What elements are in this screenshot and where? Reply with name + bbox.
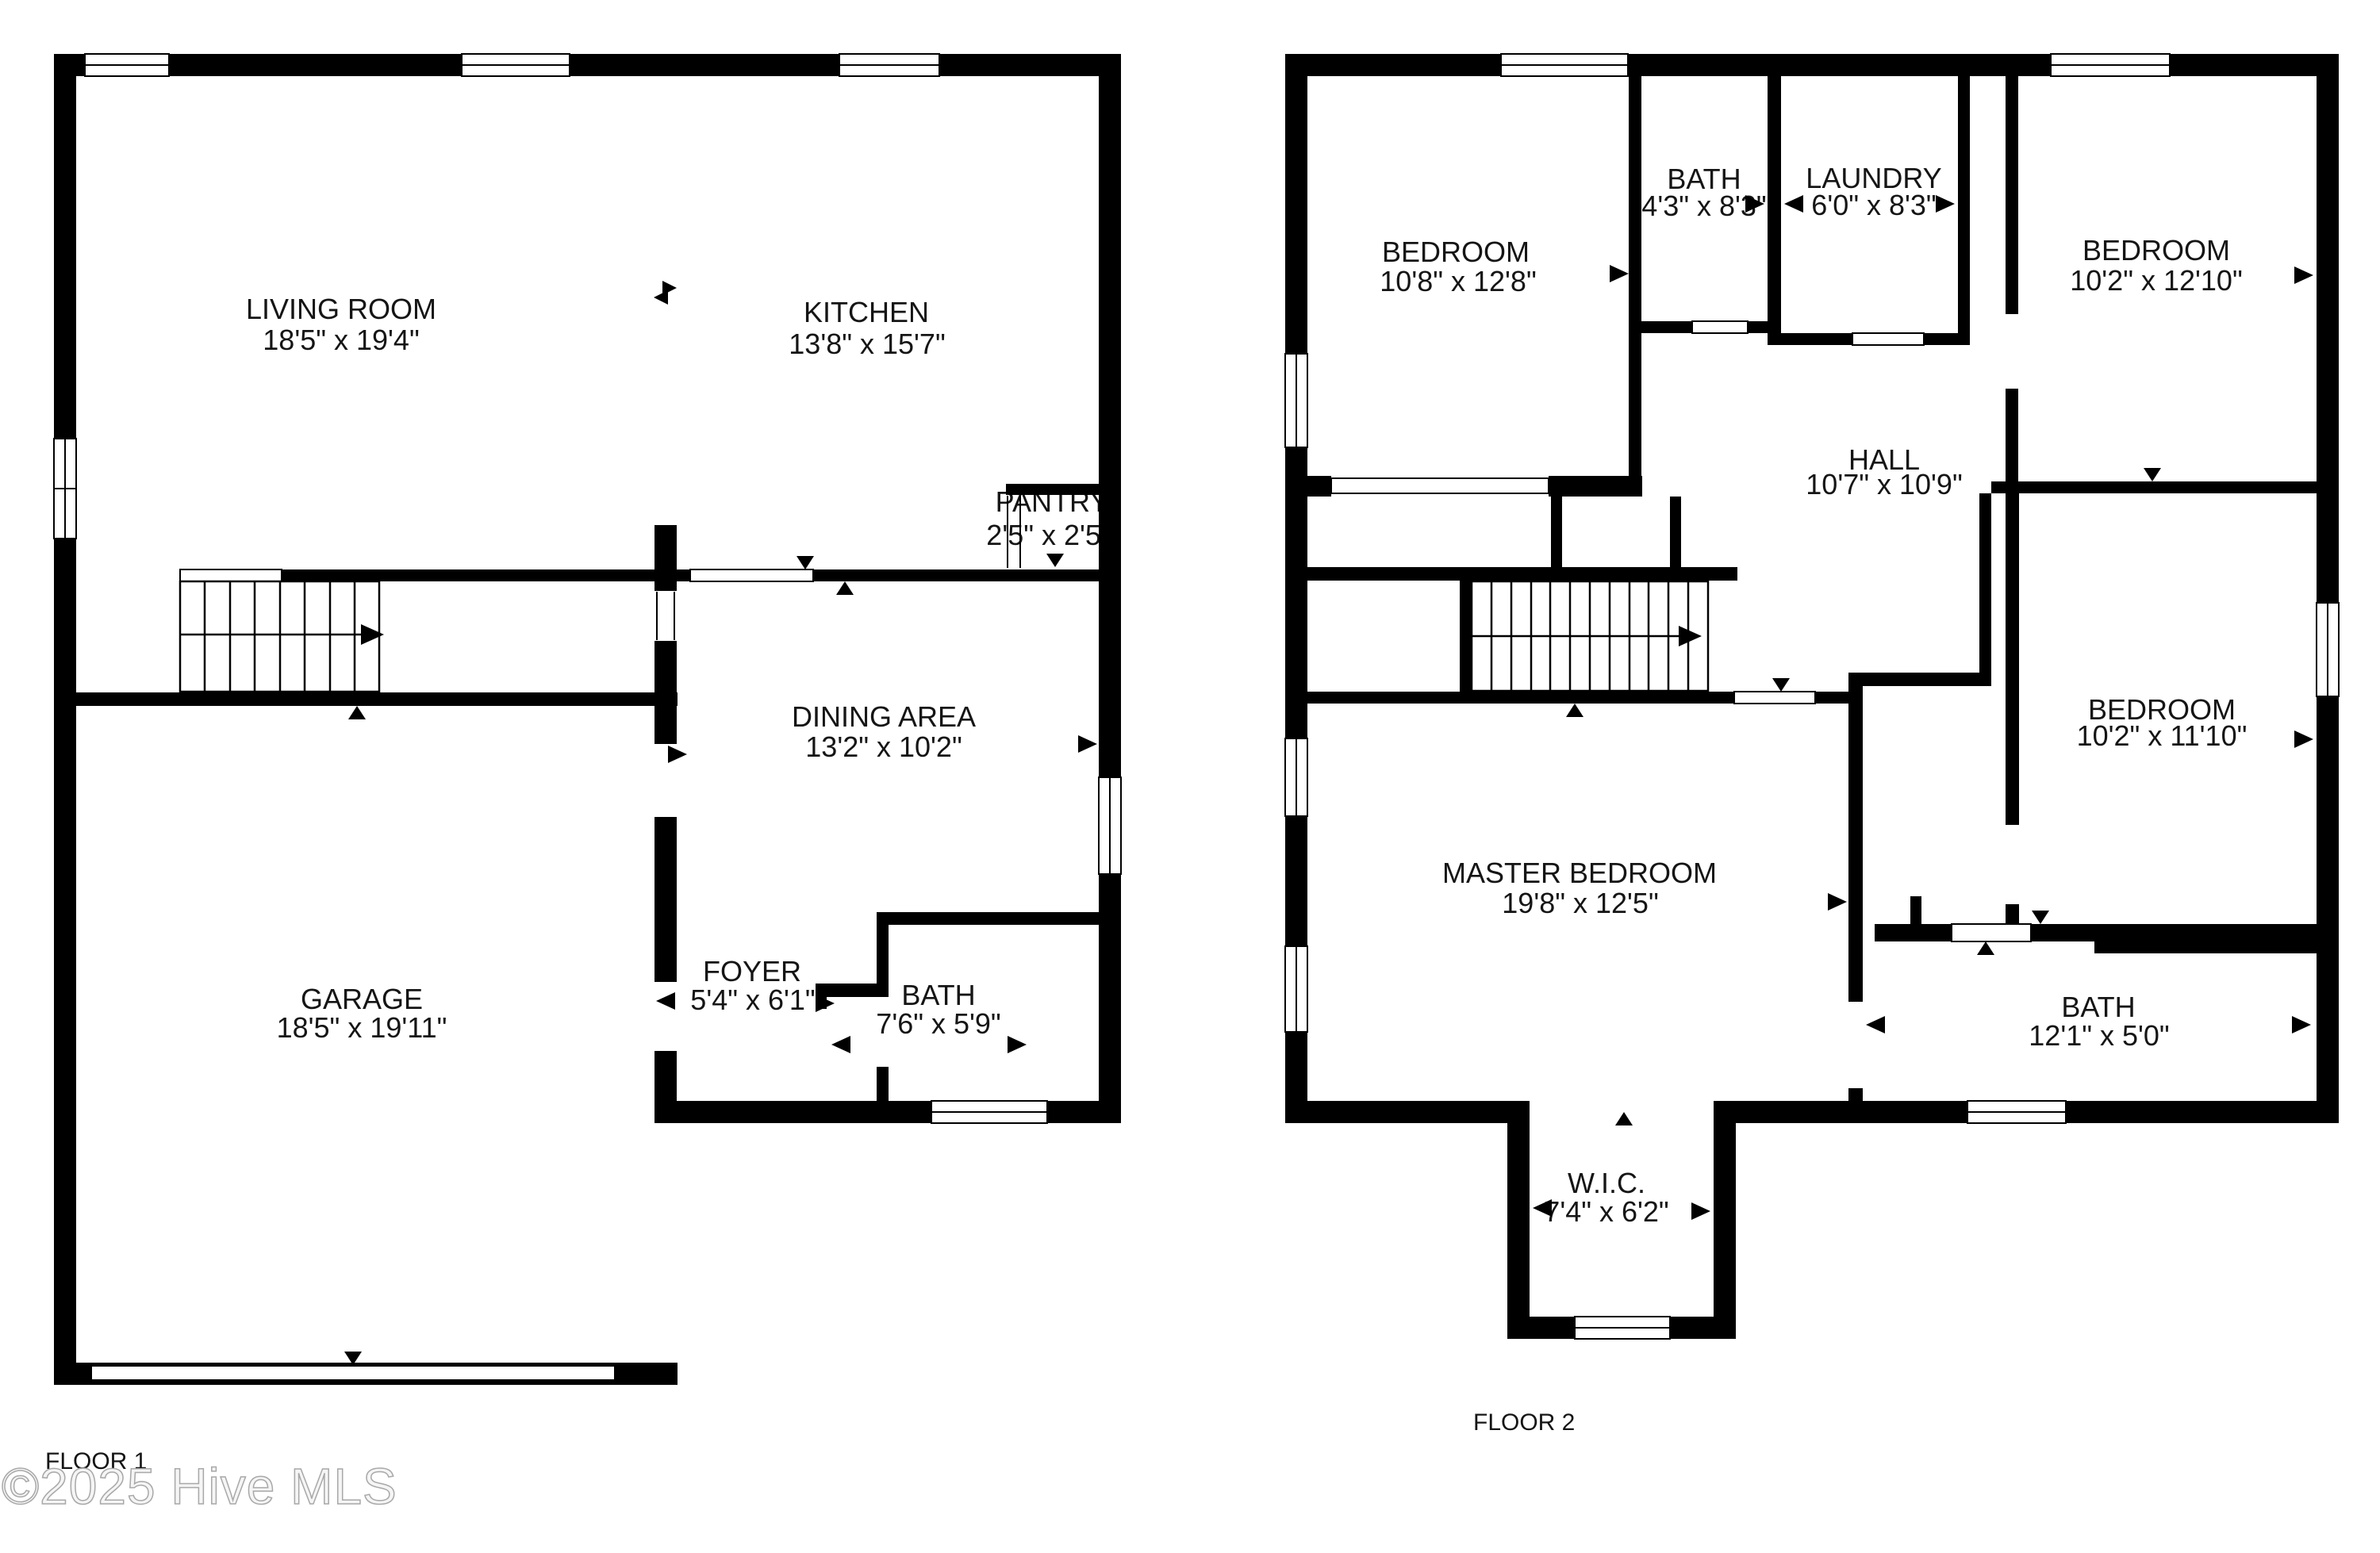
room-dims-hall: 10'7" x 10'9" xyxy=(1806,468,1962,500)
room-dims-bath-1: 7'6" x 5'9" xyxy=(876,1007,1000,1040)
room-dims-laundry: 6'0" x 8'3" xyxy=(1811,189,1936,221)
room-label-bedroom-topleft: BEDROOM xyxy=(1382,236,1530,268)
room-label-kitchen: KITCHEN xyxy=(804,296,929,328)
room-dims-wic: 7'4" x 6'2" xyxy=(1544,1195,1668,1228)
floor1-plan: LIVING ROOM 18'5" x 19'4" KITCHEN 13'8" … xyxy=(54,54,1121,1385)
floor2-plan: BEDROOM 10'8" x 12'8" BATH 4'3" x 8'3" L… xyxy=(1285,54,2339,1339)
room-dims-kitchen: 13'8" x 15'7" xyxy=(789,328,945,360)
room-label-master-bedroom: MASTER BEDROOM xyxy=(1442,857,1717,889)
room-dims-bedroom-topleft: 10'8" x 12'8" xyxy=(1380,265,1536,297)
room-dims-bedroom-topright: 10'2" x 12'10" xyxy=(2070,264,2242,297)
room-dims-foyer: 5'4" x 6'1" xyxy=(690,984,815,1016)
room-dims-garage: 18'5" x 19'11" xyxy=(277,1011,447,1044)
floor1-room-labels: LIVING ROOM 18'5" x 19'4" KITCHEN 13'8" … xyxy=(246,293,1111,1044)
watermark: ©2025 Hive MLS xyxy=(2,1458,397,1515)
floor1-stairs xyxy=(180,581,384,692)
room-label-dining-area: DINING AREA xyxy=(792,700,976,733)
room-label-bath-2: BATH xyxy=(2061,991,2135,1023)
room-dims-bedroom-right: 10'2" x 11'10" xyxy=(2077,719,2248,752)
floor2-stairs xyxy=(1472,581,1708,691)
room-label-bedroom-topright: BEDROOM xyxy=(2082,234,2230,267)
garage-door xyxy=(91,1366,615,1380)
room-label-foyer: FOYER xyxy=(703,955,801,987)
room-dims-dining-area: 13'2" x 10'2" xyxy=(805,730,962,763)
room-dims-pantry: 2'5" x 2'5" xyxy=(986,519,1111,551)
bedroom-closet-opening xyxy=(1331,478,1549,493)
room-dims-master-bedroom: 19'8" x 12'5" xyxy=(1502,887,1658,919)
room-label-wic: W.I.C. xyxy=(1568,1167,1645,1199)
floor2-title: FLOOR 2 xyxy=(1473,1409,1575,1436)
room-label-garage: GARAGE xyxy=(301,983,423,1015)
floorplan-svg: LIVING ROOM 18'5" x 19'4" KITCHEN 13'8" … xyxy=(0,0,2380,1553)
room-label-living-room: LIVING ROOM xyxy=(246,293,436,325)
floorplan-image: LIVING ROOM 18'5" x 19'4" KITCHEN 13'8" … xyxy=(0,0,2380,1553)
stairs-direction-arrow xyxy=(361,624,384,645)
room-dims-living-room: 18'5" x 19'4" xyxy=(263,324,419,356)
room-label-bath-1: BATH xyxy=(901,979,975,1011)
floor1-door-markers xyxy=(344,281,1097,1365)
room-dims-bath-2: 12'1" x 5'0" xyxy=(2029,1019,2169,1052)
stair-railing xyxy=(180,569,282,581)
stairs-direction-arrow xyxy=(1679,626,1702,646)
